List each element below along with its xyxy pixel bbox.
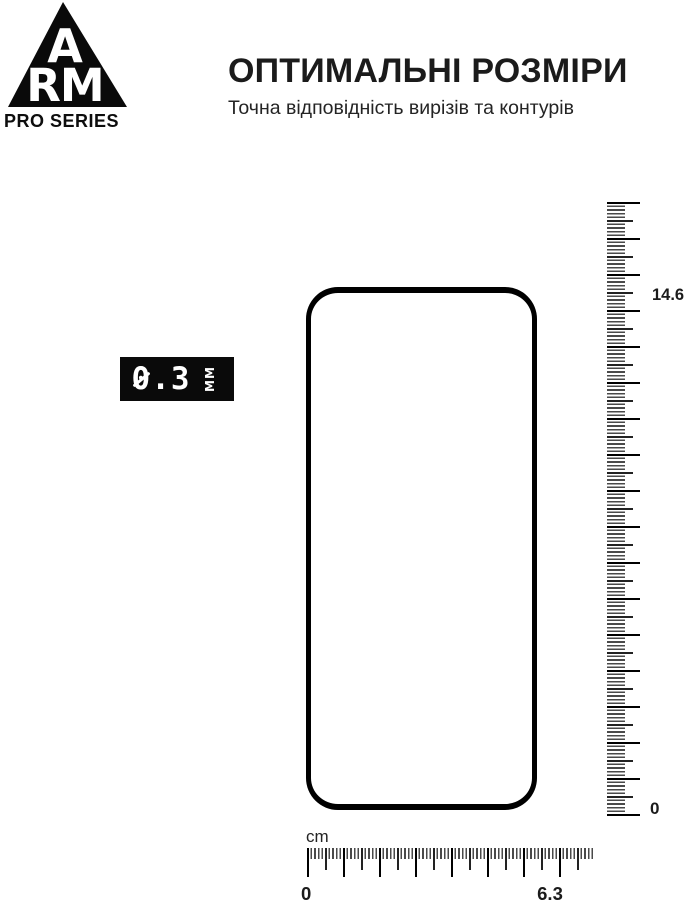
horizontal-ruler-major-ticks [307, 848, 595, 877]
thickness-unit-label: ММ [203, 366, 215, 392]
header: ОПТИМАЛЬНІ РОЗМІРИ Точна відповідність в… [228, 52, 668, 120]
horizontal-ruler-max-label: 6.3 [534, 883, 566, 905]
glass-outline [306, 287, 537, 810]
horizontal-ruler-min-label: 0 [301, 883, 311, 905]
brand-triangle-icon: A RM [8, 2, 127, 107]
vertical-ruler-max-label: 14.6 [652, 286, 684, 305]
vertical-ruler-major-ticks [607, 202, 640, 816]
horizontal-ruler-unit-label: cm [306, 827, 329, 847]
brand-letters-rm: RM [26, 59, 103, 107]
product-infographic: A RM PRO SERIES ОПТИМАЛЬНІ РОЗМІРИ Точна… [0, 0, 688, 907]
vertical-ruler [607, 202, 641, 816]
horizontal-ruler [307, 848, 595, 878]
thickness-badge: 0.3 ММ [120, 357, 234, 401]
thickness-value: 0.3 [132, 364, 191, 395]
vertical-ruler-min-label: 0 [650, 799, 659, 819]
page-title: ОПТИМАЛЬНІ РОЗМІРИ [228, 52, 668, 91]
brand-series-label: PRO SERIES [4, 111, 138, 132]
page-subtitle: Точна відповідність вирізів та контурів [228, 97, 668, 120]
brand-logo: A RM PRO SERIES [8, 2, 138, 132]
